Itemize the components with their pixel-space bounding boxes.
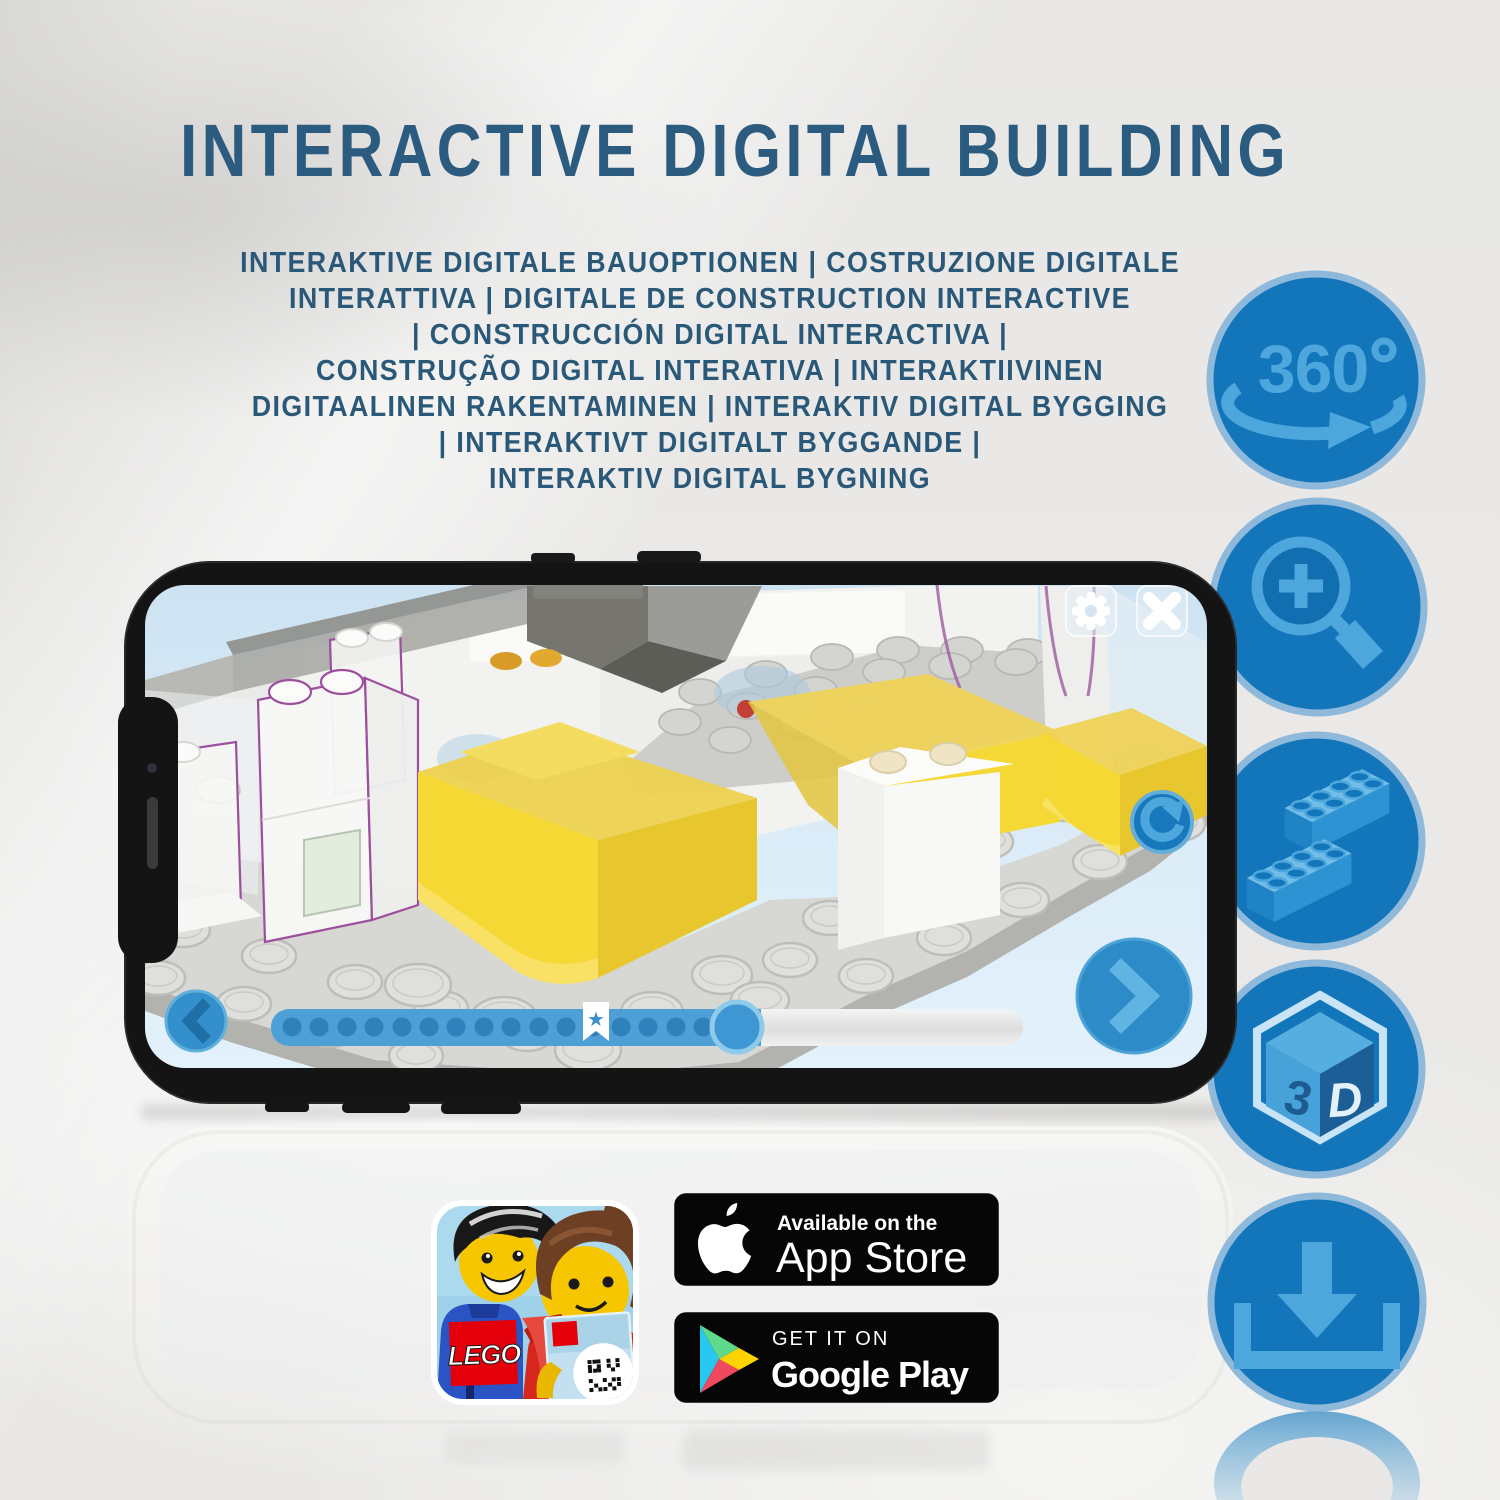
svg-text:★: ★ bbox=[587, 1009, 605, 1031]
svg-text:360: 360 bbox=[1258, 331, 1368, 407]
svg-text:App Store: App Store bbox=[776, 1234, 967, 1282]
svg-text:LEGO: LEGO bbox=[447, 1339, 522, 1372]
svg-text:Google Play: Google Play bbox=[771, 1354, 969, 1395]
svg-text:GET IT ON: GET IT ON bbox=[772, 1328, 889, 1350]
svg-text:D: D bbox=[1326, 1073, 1364, 1128]
svg-text:Available on the: Available on the bbox=[777, 1212, 937, 1235]
